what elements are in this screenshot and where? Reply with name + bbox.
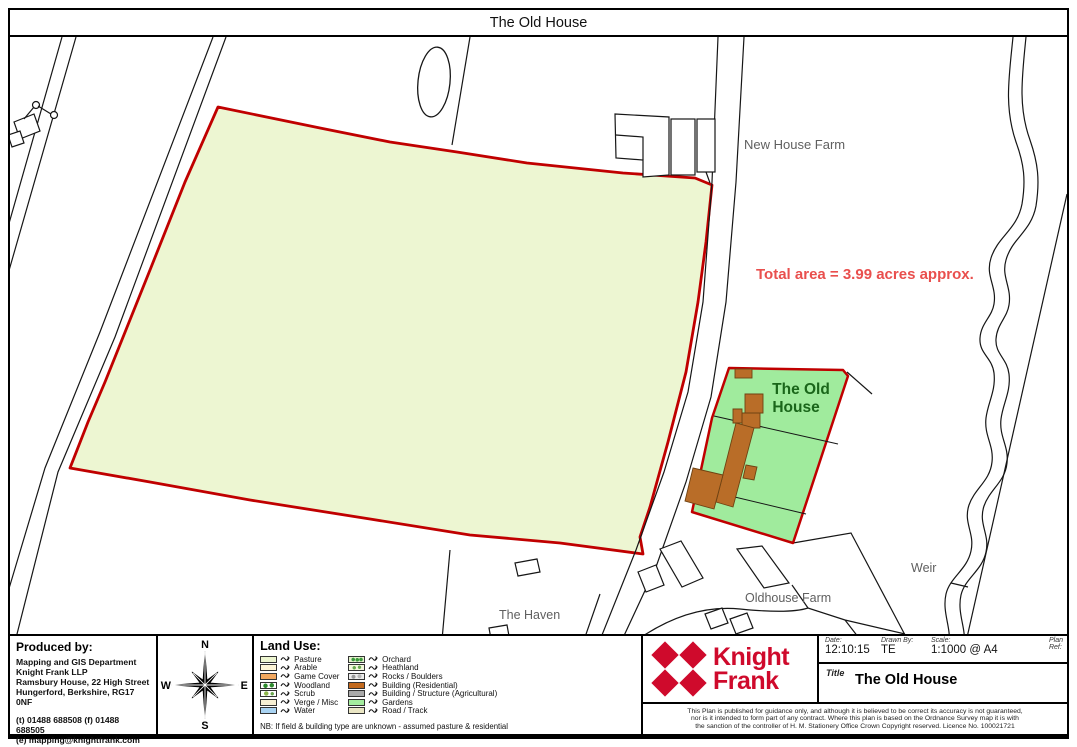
label-old-house-2: House [772,399,820,416]
title-label: Title [826,668,844,678]
legend-item-arable: Arable [260,664,348,673]
knight-frank-logo: Knight Frank [643,636,819,702]
map-drawing: New House Farm Total area = 3.99 acres a… [10,37,1067,634]
squiggle-icon [368,690,379,698]
squiggle-icon [368,698,379,706]
building-residential-swatch [348,682,365,689]
label-oldhouse-farm: Oldhouse Farm [745,591,831,605]
knight-frank-mark-icon [651,641,707,697]
legend-heading: Land Use: [260,639,641,653]
building-agricultural-swatch [348,690,365,697]
squiggle-icon [368,664,379,672]
squiggle-icon [280,655,291,663]
orchard-swatch [348,656,365,663]
haven-buildings [489,559,540,634]
legend-item-pasture: Pasture [260,655,348,664]
squiggle-icon [280,698,291,706]
label-new-house-farm: New House Farm [744,137,845,152]
legend-item-scrub: Scrub [260,689,348,698]
plan-page: The Old House [0,0,1077,747]
compass-w-label: W [161,680,172,692]
produced-by-phone: (t) 01488 688508 (f) 01488 688505 [16,715,150,735]
legend-note: NB: If field & building type are unknown… [260,722,508,731]
brand-and-info-panel: Knight Frank Date: 12:10:15 Drawn By: [643,636,1067,734]
produced-by-heading: Produced by: [16,640,150,654]
pasture-parcel [70,107,712,554]
heathland-swatch [348,664,365,671]
squiggle-icon [280,707,291,715]
squiggle-icon [280,672,291,680]
compass-n-label: N [201,639,209,651]
disclaimer: This Plan is published for guidance only… [643,702,1067,734]
legend-item-orchard: Orchard [348,655,558,664]
pasture-swatch [260,656,277,663]
legend-item-game-cover: Game Cover [260,672,348,681]
verge-swatch [260,699,277,706]
plan-meta-row: Date: 12:10:15 Drawn By: TE Scale: 1:100… [819,636,1067,664]
legend-item-heathland: Heathland [348,664,558,673]
label-total-area: Total area = 3.99 acres approx. [756,266,974,283]
squiggle-icon [280,664,291,672]
river [945,37,1038,634]
scale-cell: Scale: 1:1000 @ A4 [931,637,1049,662]
pond [414,46,453,119]
label-old-house-1: The Old [772,381,830,398]
squiggle-icon [368,707,379,715]
label-weir: Weir [911,561,936,575]
title-value: The Old House [855,672,957,688]
produced-by-line: Hungerford, Berkshire, RG17 0NF [16,687,150,707]
drawn-by-cell: Drawn By: TE [881,637,931,662]
label-the-haven: The Haven [499,608,560,622]
produced-by-panel: Produced by: Mapping and GIS Department … [10,636,158,734]
plan-info-panel: Date: 12:10:15 Drawn By: TE Scale: 1:100… [819,636,1067,702]
plan-title-row: Title The Old House [819,664,1067,702]
squiggle-icon [280,690,291,698]
compass-e-label: E [241,680,248,692]
water-swatch [260,707,277,714]
legend-item-gardens: Gardens [348,698,558,707]
compass-panel: N E S W [158,636,254,734]
legend-item-building-residential: Building (Residential) [348,681,558,690]
legend-item-verge: Verge / Misc [260,698,348,707]
footer: Produced by: Mapping and GIS Department … [10,634,1067,734]
page-title: The Old House [490,15,588,31]
legend-item-road-track: Road / Track [348,707,558,716]
produced-by-line: Mapping and GIS Department [16,657,150,667]
compass-s-label: S [202,720,209,732]
legend-item-woodland: Woodland [260,681,348,690]
brand-wordmark: Knight Frank [713,645,789,693]
squiggle-icon [368,681,379,689]
legend-item-rocks: Rocks / Boulders [348,672,558,681]
game-cover-swatch [260,673,277,680]
title-bar: The Old House [10,10,1067,37]
date-cell: Date: 12:10:15 [825,637,881,662]
squiggle-icon [280,681,291,689]
squiggle-icon [368,672,379,680]
road-track-swatch [348,707,365,714]
legend-item-building-agricultural: Building / Structure (Agricultural) [348,689,558,698]
plan-frame: The Old House [8,8,1069,739]
compass-rose-icon: N E S W [158,638,252,732]
scale-value: 1:1000 @ A4 [931,644,1049,656]
land-use-legend: Land Use: Pasture Arable [254,636,643,734]
map-area: New House Farm Total area = 3.99 acres a… [10,37,1067,634]
produced-by-line: Knight Frank LLP [16,667,150,677]
scrub-swatch [260,690,277,697]
produced-by-line: Ramsbury House, 22 High Street [16,677,150,687]
squiggle-icon [368,655,379,663]
rocks-swatch [348,673,365,680]
arable-swatch [260,664,277,671]
legend-item-water: Water [260,707,348,716]
woodland-swatch [260,682,277,689]
date-value: 12:10:15 [825,644,881,656]
gardens-swatch [348,699,365,706]
produced-by-email: (e) mapping@knightfrank.com [16,735,150,745]
plan-ref-cell: Plan Ref: [1049,637,1063,662]
drawn-by-value: TE [881,644,931,656]
